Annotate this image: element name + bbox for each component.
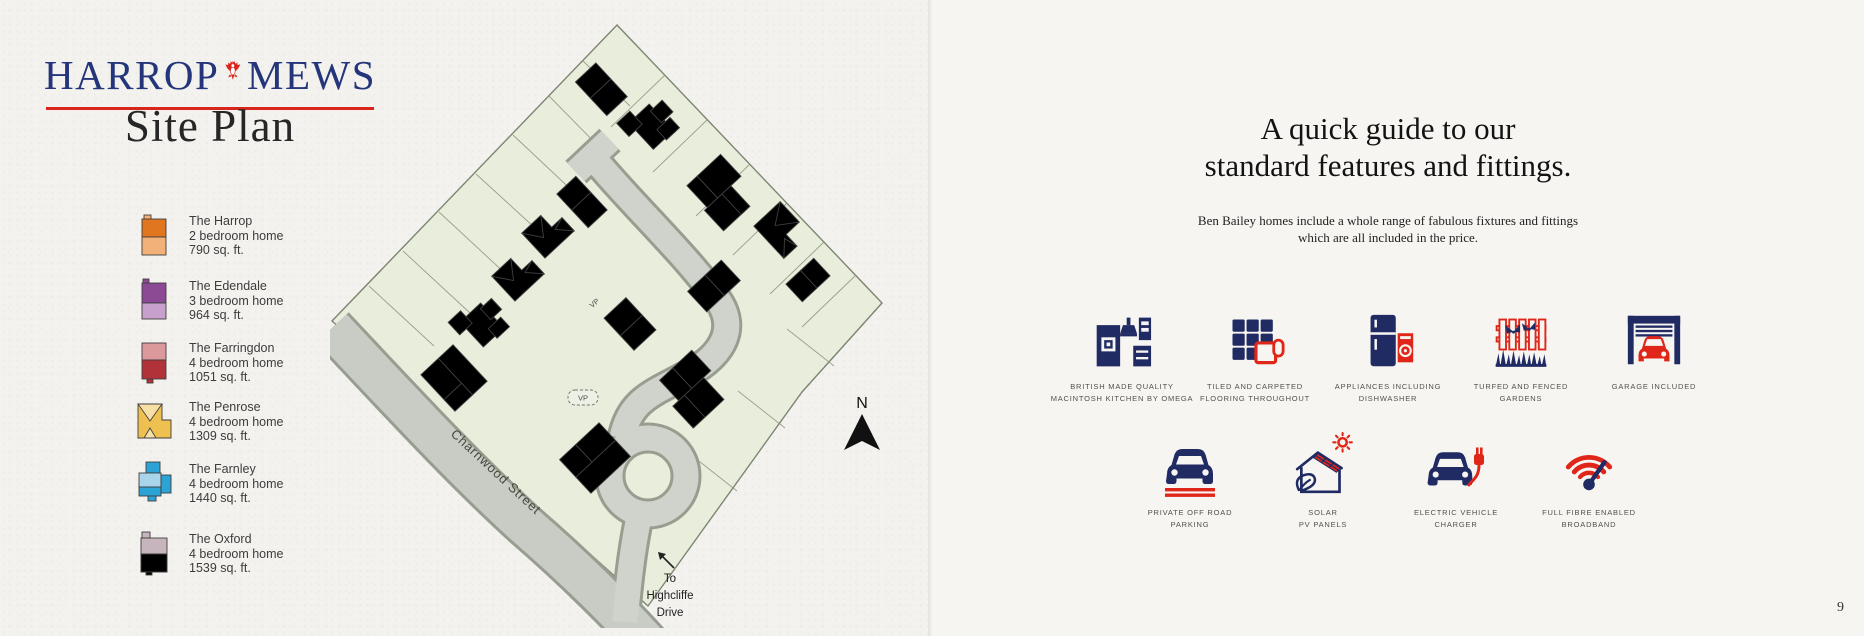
feature-label-line2: PARKING [1148, 519, 1233, 531]
legend-area: 790 sq. ft. [189, 243, 284, 258]
feature-label-line1: PRIVATE OFF ROAD [1148, 507, 1233, 519]
feature-label-line2: CHARGER [1414, 519, 1498, 531]
legend-area: 1539 sq. ft. [189, 561, 284, 576]
vp-marker: VP [568, 390, 598, 405]
legend-spec: 4 bedroom home [189, 415, 284, 430]
features-intro: Ben Bailey homes include a whole range o… [932, 212, 1844, 246]
legend-name: The Farnley [189, 462, 284, 477]
legend-name: The Harrop [189, 214, 284, 229]
feature-label-line2: BROADBAND [1542, 519, 1636, 531]
feature-label-line1: ELECTRIC VEHICLE [1414, 507, 1498, 519]
parking-icon [1158, 434, 1222, 498]
page-title: Site Plan [44, 100, 376, 152]
appliances-icon [1357, 310, 1419, 372]
solar-icon [1290, 432, 1356, 498]
legend-name: The Oxford [189, 532, 284, 547]
site-plan-svg: Charnwood Street VP VP N To Highcliffe D… [330, 8, 890, 628]
feature-label-line1: BRITISH MADE QUALITY [1051, 381, 1194, 393]
legend-name: The Farringdon [189, 341, 284, 356]
eagle-emblem-icon [224, 39, 242, 101]
feature-broadband: FULL FIBRE ENABLED BROADBAND [1509, 424, 1669, 531]
feature-label-line1: FULL FIBRE ENABLED [1542, 507, 1636, 519]
feature-label-line1: GARAGE INCLUDED [1612, 381, 1697, 393]
brand-logo: HARROP MEWS [44, 42, 376, 108]
broadband-icon [1558, 436, 1620, 498]
svg-text:VP: VP [578, 394, 588, 403]
edendale-house-icon [134, 277, 174, 323]
features-intro-line2: which are all included in the price. [932, 229, 1844, 246]
north-compass: N [844, 395, 880, 450]
garden-icon [1491, 312, 1551, 372]
legend-spec: 4 bedroom home [189, 477, 284, 492]
legend-name: The Edendale [189, 279, 284, 294]
svg-text:To: To [664, 573, 676, 585]
svg-text:Drive: Drive [657, 607, 684, 619]
legend-spec: 3 bedroom home [189, 294, 284, 309]
farringdon-house-icon [134, 339, 174, 385]
feature-garage: GARAGE INCLUDED [1574, 306, 1734, 393]
harrop-house-icon [134, 212, 174, 258]
flooring-icon [1225, 312, 1285, 372]
page-right: A quick guide to our standard features a… [932, 0, 1864, 636]
garage-icon [1623, 310, 1685, 372]
legend-name: The Penrose [189, 400, 284, 415]
brochure-spread: HARROP MEWS Site Plan The Harrop [0, 0, 1864, 636]
feature-label-line2: FLOORING THROUGHOUT [1200, 393, 1310, 405]
oxford-house-icon [134, 530, 174, 576]
legend-area: 1051 sq. ft. [189, 370, 284, 385]
legend-area: 1440 sq. ft. [189, 491, 284, 506]
features-intro-line1: Ben Bailey homes include a whole range o… [932, 212, 1844, 229]
feature-label-line2: MACINTOSH KITCHEN BY OMEGA [1051, 393, 1194, 405]
svg-text:N: N [856, 395, 868, 412]
feature-label-line1: TILED AND CARPETED [1200, 381, 1310, 393]
brand-name-left: HARROP [44, 55, 219, 96]
feature-label-line2: DISHWASHER [1335, 393, 1441, 405]
features-heading: A quick guide to our standard features a… [932, 110, 1844, 184]
feature-label-line1: TURFED AND FENCED [1474, 381, 1568, 393]
feature-label-line1: SOLAR [1299, 507, 1347, 519]
feature-label-line1: APPLIANCES INCLUDING [1335, 381, 1441, 393]
ev-charger-icon [1424, 434, 1488, 498]
farnley-house-icon [134, 460, 174, 506]
legend-area: 1309 sq. ft. [189, 429, 284, 444]
kitchen-icon [1092, 312, 1152, 372]
page-number: 9 [1814, 600, 1844, 616]
penrose-house-icon [134, 398, 174, 444]
legend-area: 964 sq. ft. [189, 308, 284, 323]
legend-spec: 4 bedroom home [189, 547, 284, 562]
features-heading-line1: A quick guide to our [932, 110, 1844, 147]
svg-text:Highcliffe: Highcliffe [646, 590, 693, 602]
legend-spec: 2 bedroom home [189, 229, 284, 244]
legend-spec: 4 bedroom home [189, 356, 284, 371]
feature-label-line2: PV PANELS [1299, 519, 1347, 531]
feature-label-line2: GARDENS [1474, 393, 1568, 405]
features-heading-line2: standard features and fittings. [932, 147, 1844, 184]
